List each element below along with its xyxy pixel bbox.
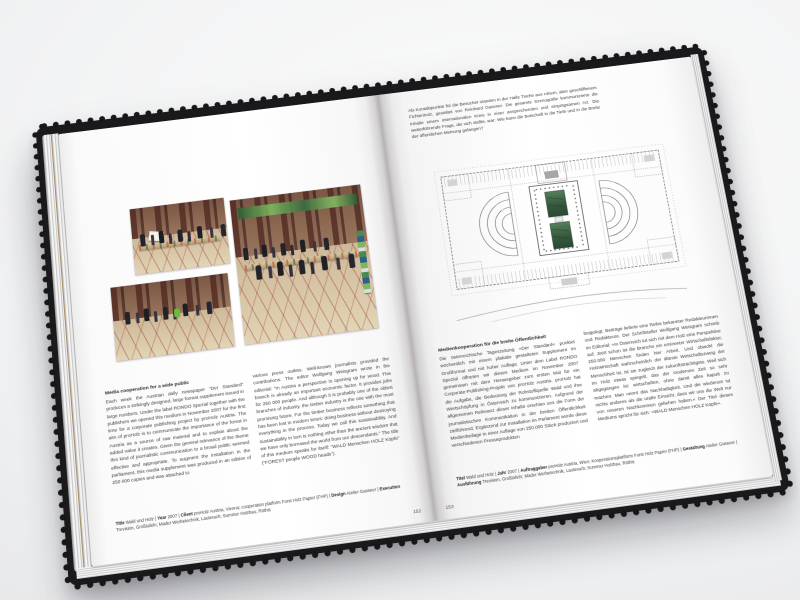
- body-paragraph-en-1: Each week the Austrian daily newspaper “…: [105, 381, 252, 487]
- body-paragraph-de-2: beigelegt. Beiträge lieferte eine Reihe …: [583, 313, 735, 423]
- ring-road-curve: [455, 283, 687, 321]
- left-page-text: Media cooperation for a wide public Each…: [105, 355, 401, 487]
- photo-visitor-group: [110, 273, 235, 361]
- visitors: [255, 265, 262, 280]
- page-spread: Media cooperation for a wide public Each…: [58, 57, 773, 567]
- page-number-left: 152: [413, 508, 422, 514]
- visitors: [139, 234, 145, 247]
- text-column-1: Medienkooperation für die breite Öffentl…: [438, 331, 590, 449]
- text-column-1: Media cooperation for a wide public Each…: [105, 374, 252, 487]
- left-page: Media cooperation for a wide public Each…: [58, 95, 435, 566]
- parliament-floor-plan: [408, 132, 717, 338]
- top-hall-block: [544, 170, 559, 179]
- photo-hall-overview: [230, 184, 379, 344]
- text-column-2: various press outlets. Well-known journa…: [252, 355, 401, 467]
- body-paragraph-de-1: Die österreichische Tageszeitung »Der St…: [439, 338, 590, 449]
- scene: Media cooperation for a wide public Each…: [0, 0, 800, 600]
- large-paper-sheet: [149, 231, 165, 241]
- assembly-hall-right: [598, 177, 642, 244]
- project-caption-en: Title Wald und Holz | Year 2007 | Client…: [115, 482, 411, 534]
- right-page-text: Medienkooperation für die breite Öffentl…: [438, 313, 736, 450]
- body-paragraph-en-2: various press outlets. Well-known journa…: [252, 355, 401, 467]
- installation-green-panels: [544, 190, 573, 249]
- page-number-right: 153: [445, 504, 454, 510]
- project-caption-de: Titel Wald und Holz | Jahr 2007 | Auftra…: [456, 438, 748, 489]
- visitors: [124, 312, 130, 325]
- open-book: Media cooperation for a wide public Each…: [36, 46, 791, 586]
- intro-paragraph-de: Als Kontaktpunkte für die Besucher stand…: [408, 84, 602, 140]
- photo-collage: [94, 175, 382, 370]
- assembly-hall-left: [475, 192, 518, 260]
- photo-visitors-reading: [130, 198, 231, 275]
- text-column-2: beigelegt. Beiträge lieferte eine Reihe …: [583, 313, 736, 430]
